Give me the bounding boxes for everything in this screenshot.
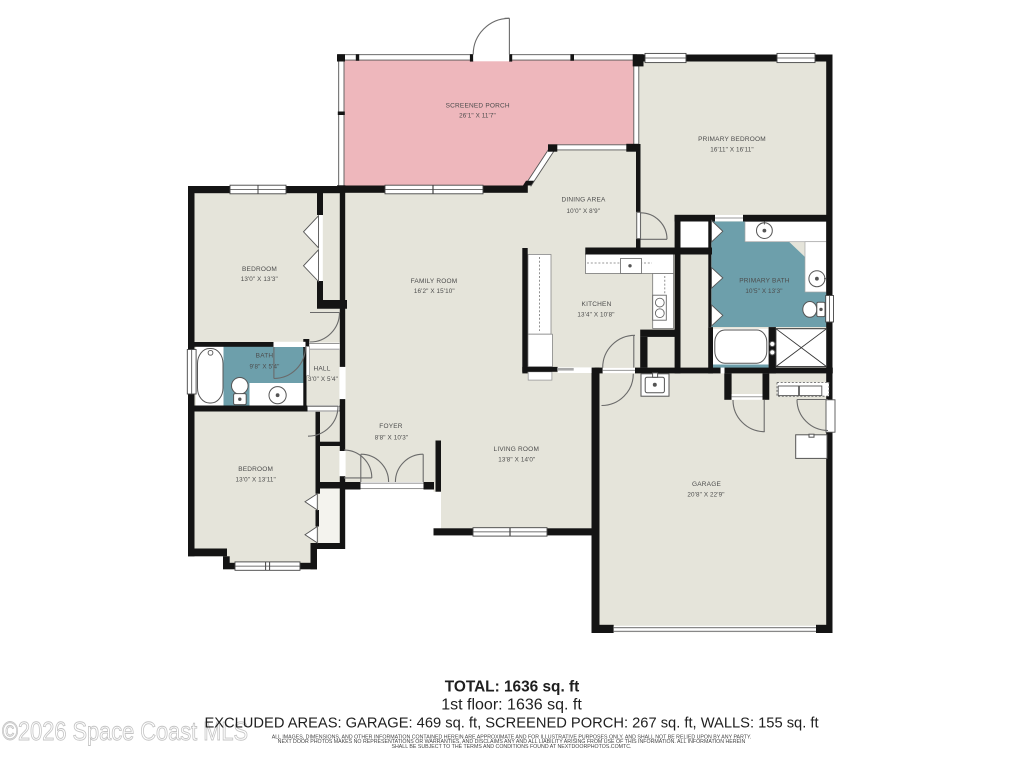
svg-text:SCREENED PORCH: SCREENED PORCH (446, 103, 510, 110)
svg-text:3'0" X 5'4": 3'0" X 5'4" (308, 376, 338, 383)
svg-text:8'8" X 10'3": 8'8" X 10'3" (375, 435, 409, 442)
svg-text:BEDROOM: BEDROOM (242, 266, 277, 273)
svg-text:HALL: HALL (313, 366, 330, 373)
svg-text:LIVING ROOM: LIVING ROOM (494, 446, 540, 453)
svg-text:BEDROOM: BEDROOM (238, 466, 273, 473)
svg-text:13'4" X 10'8": 13'4" X 10'8" (577, 311, 614, 318)
svg-text:FOYER: FOYER (379, 423, 402, 430)
svg-text:20'8" X 22'9": 20'8" X 22'9" (687, 492, 724, 499)
svg-text:10'0" X 8'9": 10'0" X 8'9" (567, 208, 601, 215)
svg-text:13'0" X 13'3": 13'0" X 13'3" (241, 276, 278, 283)
svg-text:EXCLUDED AREAS: GARAGE: 469 sq: EXCLUDED AREAS: GARAGE: 469 sq. ft, SCRE… (204, 716, 818, 732)
svg-text:PRIMARY BATH: PRIMARY BATH (739, 277, 790, 284)
svg-text:13'8" X 14'0": 13'8" X 14'0" (498, 457, 535, 464)
svg-text:SHALL BE SUBJECT TO THE TERMS: SHALL BE SUBJECT TO THE TERMS AND CONDIT… (392, 744, 632, 750)
svg-text:PRIMARY BEDROOM: PRIMARY BEDROOM (698, 136, 766, 143)
svg-text:BATH: BATH (256, 353, 274, 360)
svg-text:13'0" X 13'11": 13'0" X 13'11" (236, 477, 276, 484)
svg-text:1st floor: 1636 sq. ft: 1st floor: 1636 sq. ft (441, 697, 582, 714)
svg-text:TOTAL: 1636 sq. ft: TOTAL: 1636 sq. ft (445, 679, 580, 696)
svg-text:KITCHEN: KITCHEN (582, 301, 612, 308)
svg-text:GARAGE: GARAGE (692, 481, 721, 488)
svg-text:10'5" X 13'3": 10'5" X 13'3" (745, 288, 782, 295)
svg-text:16'2" X 15'10": 16'2" X 15'10" (414, 288, 455, 295)
svg-text:16'11" X 16'11": 16'11" X 16'11" (710, 146, 753, 153)
svg-text:DINING AREA: DINING AREA (561, 196, 606, 203)
svg-text:FAMILY ROOM: FAMILY ROOM (411, 278, 458, 285)
svg-text:9'8" X 5'4": 9'8" X 5'4" (250, 363, 280, 370)
svg-text:26'1" X 11'7": 26'1" X 11'7" (459, 113, 496, 120)
